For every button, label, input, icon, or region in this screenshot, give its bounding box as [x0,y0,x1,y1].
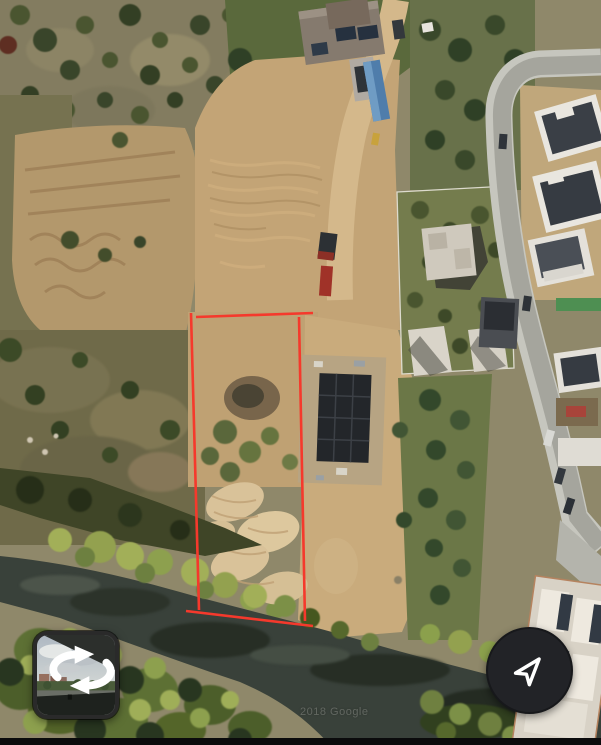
compass-button[interactable] [486,627,573,714]
streetview-thumbnail[interactable] [33,631,119,719]
map-canvas[interactable]: 2018 Google [0,0,601,745]
navigation-arrow-icon [488,629,571,712]
streetview-rotate-icon [43,631,119,710]
map-watermark: 2018 Google [300,706,440,718]
screen-bottom-edge [0,738,601,745]
